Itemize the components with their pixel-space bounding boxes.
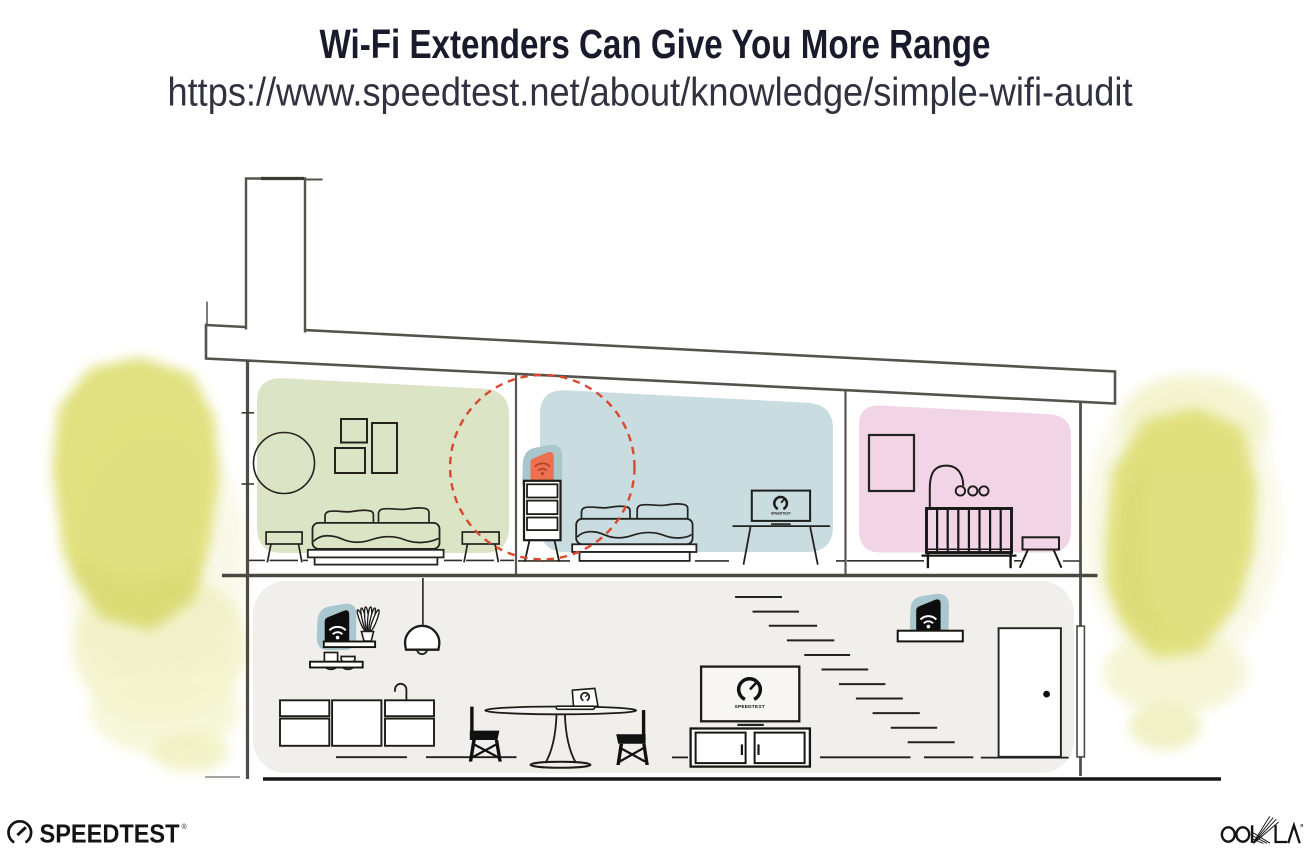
svg-text:SPEEDTEST: SPEEDTEST: [771, 512, 792, 516]
svg-text:Wi-Fi Extenders Can Give You M: Wi-Fi Extenders Can Give You More Range: [320, 21, 991, 67]
svg-text:SPEEDTEST: SPEEDTEST: [40, 821, 180, 849]
svg-text:https://www.speedtest.net/abou: https://www.speedtest.net/about/knowledg…: [168, 71, 1133, 115]
svg-text:SPEEDTEST: SPEEDTEST: [735, 704, 765, 710]
svg-text:®: ®: [182, 823, 188, 831]
